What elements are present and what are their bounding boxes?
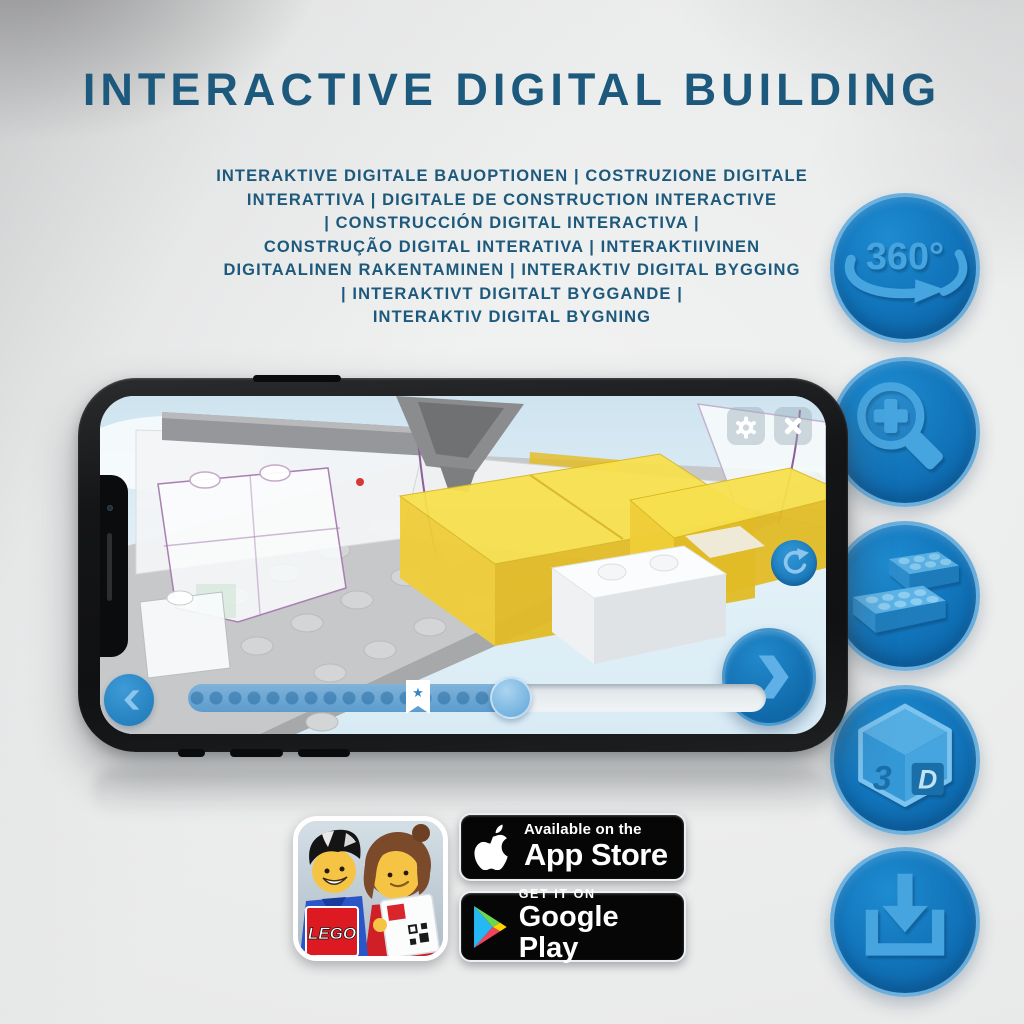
build-progress-bar[interactable]: ★ (188, 684, 766, 712)
subtitle-line: INTERAKTIVE DIGITALE BAUOPTIONEN | COSTR… (0, 165, 1024, 189)
apple-icon (474, 824, 512, 870)
progress-slider-handle[interactable] (490, 677, 532, 719)
cube-3-label: 3 (873, 759, 892, 797)
settings-gear-button[interactable] (727, 407, 765, 445)
phone-volume-up-button (230, 749, 283, 757)
close-icon (779, 412, 807, 440)
app-store-badge-top-text: Available on the (524, 822, 668, 838)
3d-view-icon: 3 D (830, 685, 980, 835)
lego-app-icon[interactable]: LEGO (293, 816, 448, 961)
google-play-badge-bottom-text: Google Play (519, 902, 671, 965)
chevron-left-icon (109, 679, 149, 721)
phone-speaker (107, 533, 112, 601)
google-play-badge-top-text: GET IT ON (519, 888, 671, 902)
google-play-icon (474, 906, 507, 948)
lego-bricks-icon (830, 521, 980, 671)
rotate-view-button[interactable] (771, 540, 817, 586)
previous-step-button[interactable] (104, 674, 154, 726)
promo-page: INTERACTIVE DIGITAL BUILDING INTERAKTIVE… (0, 0, 1024, 1024)
phone-reflection (92, 768, 828, 816)
download-icon (830, 847, 980, 997)
phone-screen: ★ (100, 396, 826, 734)
gear-icon (731, 411, 761, 441)
app-store-badge-bottom-text: App Store (524, 838, 668, 871)
rotate-icon (777, 546, 811, 580)
phone-camera (107, 505, 113, 511)
phone-power-button (253, 375, 341, 382)
page-title: INTERACTIVE DIGITAL BUILDING (0, 64, 1024, 116)
progress-fill (188, 684, 512, 712)
google-play-badge[interactable]: GET IT ON Google Play (459, 891, 686, 962)
phone-mockup: ★ (78, 378, 848, 752)
close-button[interactable] (774, 407, 812, 445)
phone-volume-down-button (298, 749, 350, 757)
app-store-badge[interactable]: Available on the App Store (459, 813, 686, 881)
zoom-in-icon (830, 357, 980, 507)
360-label: 360° (866, 236, 944, 278)
cube-d-label: D (918, 764, 937, 794)
360-rotation-icon: 360° (830, 193, 980, 343)
lego-logo: LEGO (308, 924, 356, 943)
phone-mute-switch (178, 749, 205, 757)
phone-notch (100, 475, 128, 657)
